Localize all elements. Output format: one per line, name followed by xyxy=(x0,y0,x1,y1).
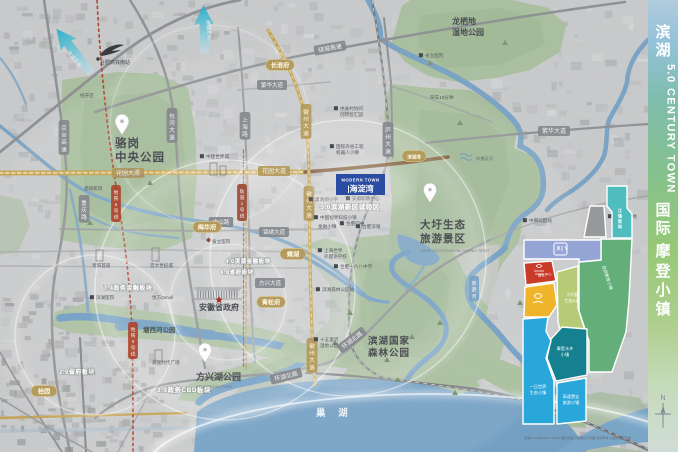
svg-text:重: 重 xyxy=(81,199,87,207)
svg-text:7.4政务金融板块: 7.4政务金融板块 xyxy=(104,284,153,292)
svg-text:LUOGANG: LUOGANG xyxy=(115,167,135,172)
svg-text:上: 上 xyxy=(242,116,248,124)
svg-text:花园大道: 花园大道 xyxy=(262,167,286,175)
svg-text:2.0省府板块: 2.0省府板块 xyxy=(59,368,95,376)
svg-text:紫华大道: 紫华大道 xyxy=(542,127,566,135)
svg-text:骆岗: 骆岗 xyxy=(115,136,140,150)
svg-text:滨湖5.0 CENTURY TOWN 国际摩登小镇规划示意图: 滨湖5.0 CENTURY TOWN 国际摩登小镇规划示意图 仅供参考 以政府批… xyxy=(524,435,631,440)
svg-text:登: 登 xyxy=(654,262,671,280)
svg-text:滨湖森林公园站: 滨湖森林公园站 xyxy=(322,286,355,293)
svg-text:6.8省府板块: 6.8省府板块 xyxy=(220,268,253,276)
svg-text:生态公园: 生态公园 xyxy=(564,298,579,303)
svg-text:河: 河 xyxy=(169,119,175,127)
svg-text:地: 地 xyxy=(131,326,136,333)
svg-text:州: 州 xyxy=(385,134,391,141)
svg-text:大圩生态: 大圩生态 xyxy=(420,218,466,231)
svg-text:大: 大 xyxy=(169,126,175,134)
svg-text:青松府: 青松府 xyxy=(262,298,281,306)
svg-text:旅游景区: 旅游景区 xyxy=(420,232,466,245)
svg-text:合肥一六八中学: 合肥一六八中学 xyxy=(340,263,373,270)
svg-text:路: 路 xyxy=(242,130,248,138)
svg-text:中建世界城: 中建世界城 xyxy=(206,153,229,160)
svg-text:高速置业: 高速置业 xyxy=(563,393,580,400)
svg-text:南: 南 xyxy=(471,280,476,287)
svg-text:京: 京 xyxy=(61,124,67,132)
svg-text:州: 州 xyxy=(303,116,309,123)
svg-text:道: 道 xyxy=(385,147,391,155)
svg-text:滨湖医院: 滨湖医院 xyxy=(96,294,115,301)
svg-text:中央公园: 中央公园 xyxy=(115,150,165,164)
svg-text:小: 小 xyxy=(655,282,670,299)
svg-text:路: 路 xyxy=(81,213,87,221)
svg-text:生态小镇: 生态小镇 xyxy=(530,389,547,396)
svg-text:方兴湖公园: 方兴湖公园 xyxy=(196,371,241,382)
svg-text:合肥滨湖: 合肥滨湖 xyxy=(362,223,381,230)
svg-text:州: 州 xyxy=(309,350,315,357)
svg-text:包: 包 xyxy=(169,112,175,120)
svg-text:中国视界科技小镇: 中国视界科技小镇 xyxy=(320,214,357,221)
svg-text:高速时代广场: 高速时代广场 xyxy=(152,359,180,366)
svg-text:驾车10分钟: 驾车10分钟 xyxy=(430,94,454,101)
svg-text:铁: 铁 xyxy=(131,332,136,339)
svg-text:河: 河 xyxy=(471,293,476,300)
svg-text:机器人小镇: 机器人小镇 xyxy=(336,149,359,156)
svg-text:塘西河公园: 塘西河公园 xyxy=(143,325,176,334)
svg-text:国际声谷工程: 国际声谷工程 xyxy=(336,143,364,150)
svg-text:淝: 淝 xyxy=(471,286,476,293)
svg-text:1: 1 xyxy=(241,201,244,207)
svg-text:中关村协同: 中关村协同 xyxy=(340,105,363,112)
svg-text:|海淀湾: |海淀湾 xyxy=(347,184,373,194)
svg-text:湿地公园: 湿地公园 xyxy=(320,342,339,349)
svg-text:湿地公园: 湿地公园 xyxy=(452,27,484,37)
svg-text:蝶湖: 蝶湖 xyxy=(287,250,299,258)
svg-text:骆岗机场: 骆岗机场 xyxy=(84,185,103,192)
svg-text:繁华大道: 繁华大道 xyxy=(261,81,284,89)
svg-text:经开区: 经开区 xyxy=(80,92,94,99)
svg-text:高: 高 xyxy=(61,138,67,146)
svg-text:摩登水乡: 摩登水乡 xyxy=(557,345,574,352)
svg-text:龙栖地: 龙栖地 xyxy=(451,16,476,26)
svg-text:5.0 CENTURY TOWN: 5.0 CENTURY TOWN xyxy=(665,64,677,194)
svg-text:轨: 轨 xyxy=(240,188,245,195)
svg-text:海: 海 xyxy=(242,123,248,131)
svg-text:号: 号 xyxy=(240,207,245,213)
svg-text:线: 线 xyxy=(131,351,136,358)
svg-text:国: 国 xyxy=(655,202,670,219)
svg-text:外国语学校: 外国语学校 xyxy=(324,253,347,260)
svg-text:庆: 庆 xyxy=(81,206,87,214)
svg-text:号: 号 xyxy=(131,345,136,351)
svg-text:3.0政务CBD板块: 3.0政务CBD板块 xyxy=(157,385,211,394)
svg-text:金融小镇: 金融小镇 xyxy=(318,223,337,230)
svg-text:省立医院: 省立医院 xyxy=(425,52,444,59)
svg-text:台: 台 xyxy=(61,131,67,139)
svg-text:道: 道 xyxy=(240,194,245,201)
svg-text:滨湖国家: 滨湖国家 xyxy=(368,335,410,347)
svg-text:锦绣大道: 锦绣大道 xyxy=(263,228,286,236)
svg-text:5: 5 xyxy=(132,339,135,345)
svg-text:滨: 滨 xyxy=(655,23,670,41)
svg-text:梅华府: 梅华府 xyxy=(198,223,217,231)
svg-text:DAWEI ECOTOURISM SCENIC SPOT: DAWEI ECOTOURISM SCENIC SPOT xyxy=(420,248,490,253)
svg-text:道: 道 xyxy=(306,211,312,219)
svg-text:徽: 徽 xyxy=(309,342,315,350)
svg-text:速: 速 xyxy=(61,146,67,153)
svg-text:合肥高铁南站: 合肥高铁南站 xyxy=(100,59,130,66)
svg-text:徽: 徽 xyxy=(303,108,309,116)
svg-text:道: 道 xyxy=(303,129,309,137)
svg-text:老城方向: 老城方向 xyxy=(204,20,212,40)
svg-text:大: 大 xyxy=(306,204,312,212)
svg-text:伴景运河: 伴景运河 xyxy=(476,155,494,162)
svg-text:MODERN TOWN: MODERN TOWN xyxy=(342,178,380,183)
svg-text:百大世纪城: 百大世纪城 xyxy=(150,262,173,269)
svg-text:旅游小镇: 旅游小镇 xyxy=(563,399,580,406)
svg-text:省立医院: 省立医院 xyxy=(212,238,231,245)
svg-text:摩: 摩 xyxy=(655,242,671,260)
svg-text:线: 线 xyxy=(114,214,119,221)
svg-text:际: 际 xyxy=(655,220,670,237)
svg-text:N: N xyxy=(660,395,665,402)
svg-text:巢 湖: 巢 湖 xyxy=(315,407,353,419)
svg-text:5: 5 xyxy=(115,202,118,208)
svg-text:CENTRAL PARK: CENTRAL PARK xyxy=(115,173,146,178)
svg-text:大: 大 xyxy=(303,122,309,130)
svg-text:线: 线 xyxy=(240,213,245,220)
svg-text:4.0滨湖金融板块: 4.0滨湖金融板块 xyxy=(225,257,270,265)
svg-text:十五里河: 十五里河 xyxy=(320,336,339,343)
svg-text:道: 道 xyxy=(309,363,315,371)
svg-text:滨湖湾: 滨湖湾 xyxy=(407,153,421,160)
svg-text:桂园: 桂园 xyxy=(37,387,50,395)
svg-text:长淮府: 长淮府 xyxy=(271,61,290,69)
svg-text:贵阳首座: 贵阳首座 xyxy=(92,262,111,269)
svg-text:地: 地 xyxy=(114,189,119,196)
svg-text:湖: 湖 xyxy=(655,42,670,59)
svg-text:大: 大 xyxy=(309,356,315,364)
svg-text:方兴大道: 方兴大道 xyxy=(259,279,282,287)
svg-text:小镇: 小镇 xyxy=(561,351,569,358)
svg-text:上海世界: 上海世界 xyxy=(324,247,343,254)
svg-text:号: 号 xyxy=(114,208,119,214)
svg-text:一日世界: 一日世界 xyxy=(530,383,548,390)
svg-text:镇: 镇 xyxy=(655,300,670,318)
svg-text:铁: 铁 xyxy=(114,195,119,202)
svg-text:悦方Omall: 悦方Omall xyxy=(152,294,173,301)
svg-text:中央公园站: 中央公园站 xyxy=(529,217,552,224)
svg-text:大圩湿: 大圩湿 xyxy=(566,292,578,297)
svg-text:大: 大 xyxy=(385,140,391,148)
svg-text:森林公园: 森林公园 xyxy=(368,347,410,359)
svg-text:道: 道 xyxy=(169,133,175,141)
svg-text:安徽省政府: 安徽省政府 xyxy=(199,302,239,312)
svg-text:庐: 庐 xyxy=(385,126,391,134)
svg-text:创新智汇园: 创新智汇园 xyxy=(340,111,363,118)
